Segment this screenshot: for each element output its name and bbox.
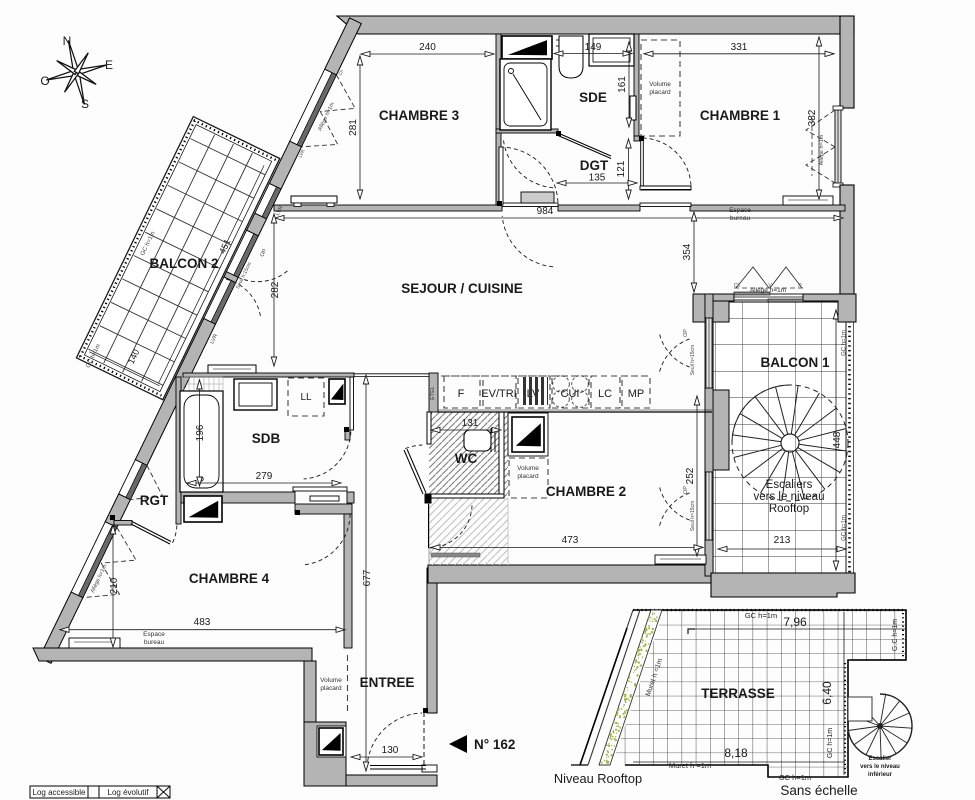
svg-text:Muret h =1m: Muret h =1m: [669, 761, 711, 770]
svg-text:RGT: RGT: [140, 493, 169, 508]
svg-text:213: 213: [774, 535, 791, 546]
svg-text:CHAMBRE 3: CHAMBRE 3: [379, 108, 460, 123]
svg-text:Seuil h=15cm: Seuil h=15cm: [690, 345, 696, 375]
svg-text:Escalier: Escalier: [868, 756, 892, 762]
svg-text:196: 196: [195, 424, 206, 441]
svg-text:EV/TRI: EV/TRI: [481, 388, 516, 400]
svg-text:E: E: [105, 58, 113, 72]
svg-text:CHAMBRE 1: CHAMBRE 1: [700, 108, 781, 123]
svg-text:G.C h=1m: G.C h=1m: [892, 619, 899, 651]
svg-text:281: 281: [348, 119, 359, 136]
svg-text:vers le niveau: vers le niveau: [860, 764, 900, 770]
svg-text:Volume: Volume: [517, 465, 539, 472]
svg-text:210: 210: [109, 577, 120, 594]
svg-text:Espace: Espace: [143, 631, 165, 638]
svg-text:SDE: SDE: [579, 90, 607, 105]
svg-text:SEJOUR / CUISINE: SEJOUR / CUISINE: [401, 281, 523, 296]
svg-text:N° 162: N° 162: [474, 737, 515, 752]
svg-text:Log accessible: Log accessible: [33, 788, 86, 797]
svg-text:WC: WC: [455, 451, 478, 466]
svg-text:282: 282: [270, 281, 281, 298]
svg-text:SDB: SDB: [252, 431, 281, 446]
svg-text:252: 252: [685, 467, 696, 484]
svg-text:161: 161: [617, 76, 628, 93]
svg-text:984: 984: [537, 206, 554, 217]
svg-text:473: 473: [562, 535, 579, 546]
svg-text:131: 131: [462, 418, 479, 429]
svg-text:135: 135: [589, 173, 606, 184]
svg-text:Volume: Volume: [320, 677, 342, 684]
svg-text:DGT: DGT: [580, 158, 609, 173]
svg-text:8,18: 8,18: [724, 746, 748, 760]
svg-text:Escaliers: Escaliers: [766, 479, 813, 491]
svg-text:Sans échelle: Sans échelle: [780, 783, 857, 798]
svg-text:bureau: bureau: [144, 639, 165, 646]
svg-text:Rooftop: Rooftop: [769, 503, 809, 515]
svg-text:R: R: [798, 283, 802, 289]
svg-text:BALCON 1: BALCON 1: [760, 355, 829, 370]
svg-text:placard: placard: [517, 473, 539, 480]
svg-text:OP: OP: [683, 329, 689, 337]
svg-text:ETEL: ETEL: [430, 386, 436, 400]
svg-text:GC h=1m: GC h=1m: [827, 728, 834, 758]
svg-text:LL: LL: [300, 392, 312, 403]
svg-text:ENTREE: ENTREE: [360, 675, 415, 690]
svg-text:GC h=1m: GC h=1m: [842, 515, 848, 541]
svg-text:Ch: Ch: [734, 283, 741, 289]
svg-text:Espace: Espace: [729, 207, 751, 214]
svg-text:130: 130: [382, 745, 399, 756]
svg-text:Niveau Rooftop: Niveau Rooftop: [554, 771, 642, 786]
svg-text:LC: LC: [598, 388, 612, 400]
svg-text:CHAMBRE 2: CHAMBRE 2: [546, 484, 626, 499]
svg-text:GC h=1m: GC h=1m: [842, 330, 848, 356]
svg-text:bureau: bureau: [730, 215, 751, 222]
svg-text:6,40: 6,40: [820, 681, 834, 705]
svg-text:inférieur: inférieur: [868, 772, 893, 778]
svg-text:354: 354: [682, 243, 693, 260]
svg-text:GC h=1m: GC h=1m: [779, 773, 811, 782]
svg-text:O: O: [40, 74, 49, 88]
svg-text:S: S: [81, 97, 89, 111]
svg-text:Volume: Volume: [649, 81, 671, 88]
svg-text:279: 279: [256, 471, 273, 482]
svg-text:240: 240: [419, 42, 436, 53]
svg-text:vers le niveau: vers le niveau: [754, 491, 825, 503]
svg-text:677: 677: [362, 569, 373, 586]
svg-text:7,96: 7,96: [783, 615, 807, 629]
svg-text:Seuil h=15cm: Seuil h=15cm: [690, 501, 696, 531]
svg-text:CUI: CUI: [561, 388, 580, 400]
svg-text:OP: OP: [683, 486, 689, 494]
svg-text:placard: placard: [320, 685, 342, 692]
svg-text:331: 331: [731, 42, 748, 53]
svg-text:483: 483: [194, 617, 211, 628]
svg-text:CHAMBRE 4: CHAMBRE 4: [189, 571, 270, 586]
svg-text:MP: MP: [628, 388, 645, 400]
svg-text:TERRASSE: TERRASSE: [701, 686, 775, 701]
svg-text:F: F: [458, 388, 465, 400]
svg-text:Allège h=1m: Allège h=1m: [819, 134, 825, 165]
svg-text:Log évolutif: Log évolutif: [108, 788, 150, 797]
svg-text:N: N: [63, 34, 72, 48]
svg-text:448: 448: [832, 431, 843, 448]
svg-text:BALCON 2: BALCON 2: [149, 256, 218, 271]
svg-text:placard: placard: [649, 89, 671, 96]
svg-text:121: 121: [616, 160, 627, 177]
svg-text:149: 149: [585, 42, 602, 53]
svg-text:GC h=1m: GC h=1m: [745, 611, 777, 620]
svg-text:382: 382: [807, 109, 818, 126]
